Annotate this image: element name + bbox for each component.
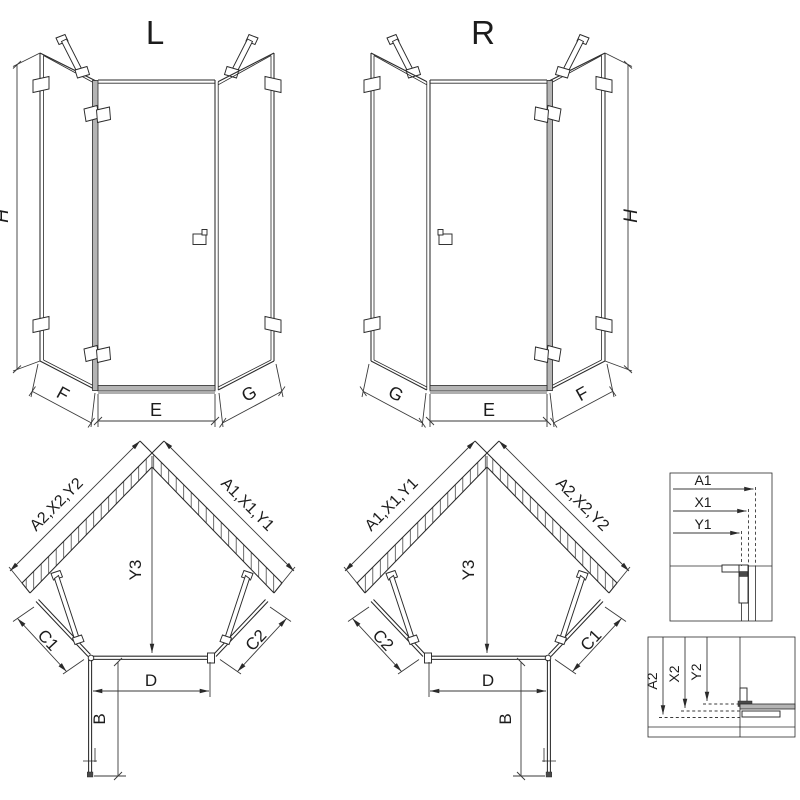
- profile-joint: [740, 572, 748, 577]
- view-title-left: L: [146, 14, 164, 51]
- dim-label-door-width: D: [482, 671, 494, 690]
- projection-dashed-lines: [742, 487, 756, 566]
- detail-dim-label-2: X1: [694, 494, 711, 510]
- detail-frame: [648, 637, 795, 737]
- dim-label-height-right: H: [621, 209, 642, 223]
- dim-label-wall-left: A2,X2,Y2: [27, 475, 87, 535]
- detail-dim-label-3: Y1: [694, 516, 711, 532]
- dim-label-bottom-left: G: [385, 382, 407, 406]
- dim-label-bottom-left: F: [53, 382, 72, 405]
- dim-label-bottom-center: E: [150, 400, 162, 420]
- detail-dim-label-2: X2: [666, 665, 682, 682]
- technical-drawing-canvas: L H F E G R H G E F A2,X2,Y2 A1,X1,Y1 Y3…: [0, 0, 800, 800]
- dim-label-bottom-right: G: [238, 382, 260, 406]
- dim-label-wall-right: A2,X2,Y2: [552, 475, 612, 535]
- detail-dim-label-1: A2: [644, 672, 660, 689]
- detail-dim-label-1: A1: [694, 472, 711, 488]
- dim-label-depth: Y3: [126, 560, 145, 581]
- dim-label-side-right: C1: [577, 626, 606, 655]
- profile-upright: [739, 565, 748, 603]
- dim-label-wall-left: A1,X1,Y1: [362, 475, 422, 535]
- front-view-right-geometry: [360, 35, 632, 428]
- dim-label-wall-right: A1,X1,Y1: [217, 475, 277, 535]
- profile-bar-gray: [740, 704, 795, 709]
- plan-view-right-geometry: [344, 441, 630, 780]
- dim-label-bottom-right: F: [572, 382, 591, 405]
- front-view-left-geometry: [13, 35, 285, 428]
- view-title-right: R: [471, 14, 495, 51]
- detail-box-bottom: A2 X2 Y2: [644, 637, 795, 737]
- plan-view-right-group: A1,X1,Y1 A2,X2,Y2 Y3 C2 C1 D B: [344, 441, 630, 780]
- dim-label-depth: Y3: [459, 560, 478, 581]
- front-view-left-group: L H F E G: [0, 14, 285, 428]
- dim-label-height-left: H: [0, 209, 13, 223]
- detail-frame: [670, 473, 772, 621]
- drawing-stage: L H F E G R H G E F A2,X2,Y2 A1,X1,Y1 Y3…: [0, 0, 800, 800]
- dim-label-side-right: C2: [242, 626, 271, 655]
- detail-dim-label-3: Y2: [688, 663, 704, 680]
- dim-label-bottom-center: E: [483, 400, 495, 420]
- plan-view-left-geometry: [9, 441, 295, 780]
- dim-label-side-left: C1: [34, 626, 63, 655]
- detail-box-top: A1 X1 Y1: [670, 472, 772, 621]
- dim-label-door-width: D: [145, 671, 157, 690]
- projection-dashed-lines: [659, 704, 740, 718]
- dim-label-door-swing: B: [496, 713, 515, 724]
- front-view-right-group: R H G E F: [360, 14, 642, 428]
- profile-bar-white: [742, 711, 780, 717]
- dim-label-side-left: C2: [369, 626, 398, 655]
- dim-label-door-swing: B: [90, 713, 109, 724]
- plan-view-left-group: A2,X2,Y2 A1,X1,Y1 Y3 C1 C2 D B: [9, 441, 295, 780]
